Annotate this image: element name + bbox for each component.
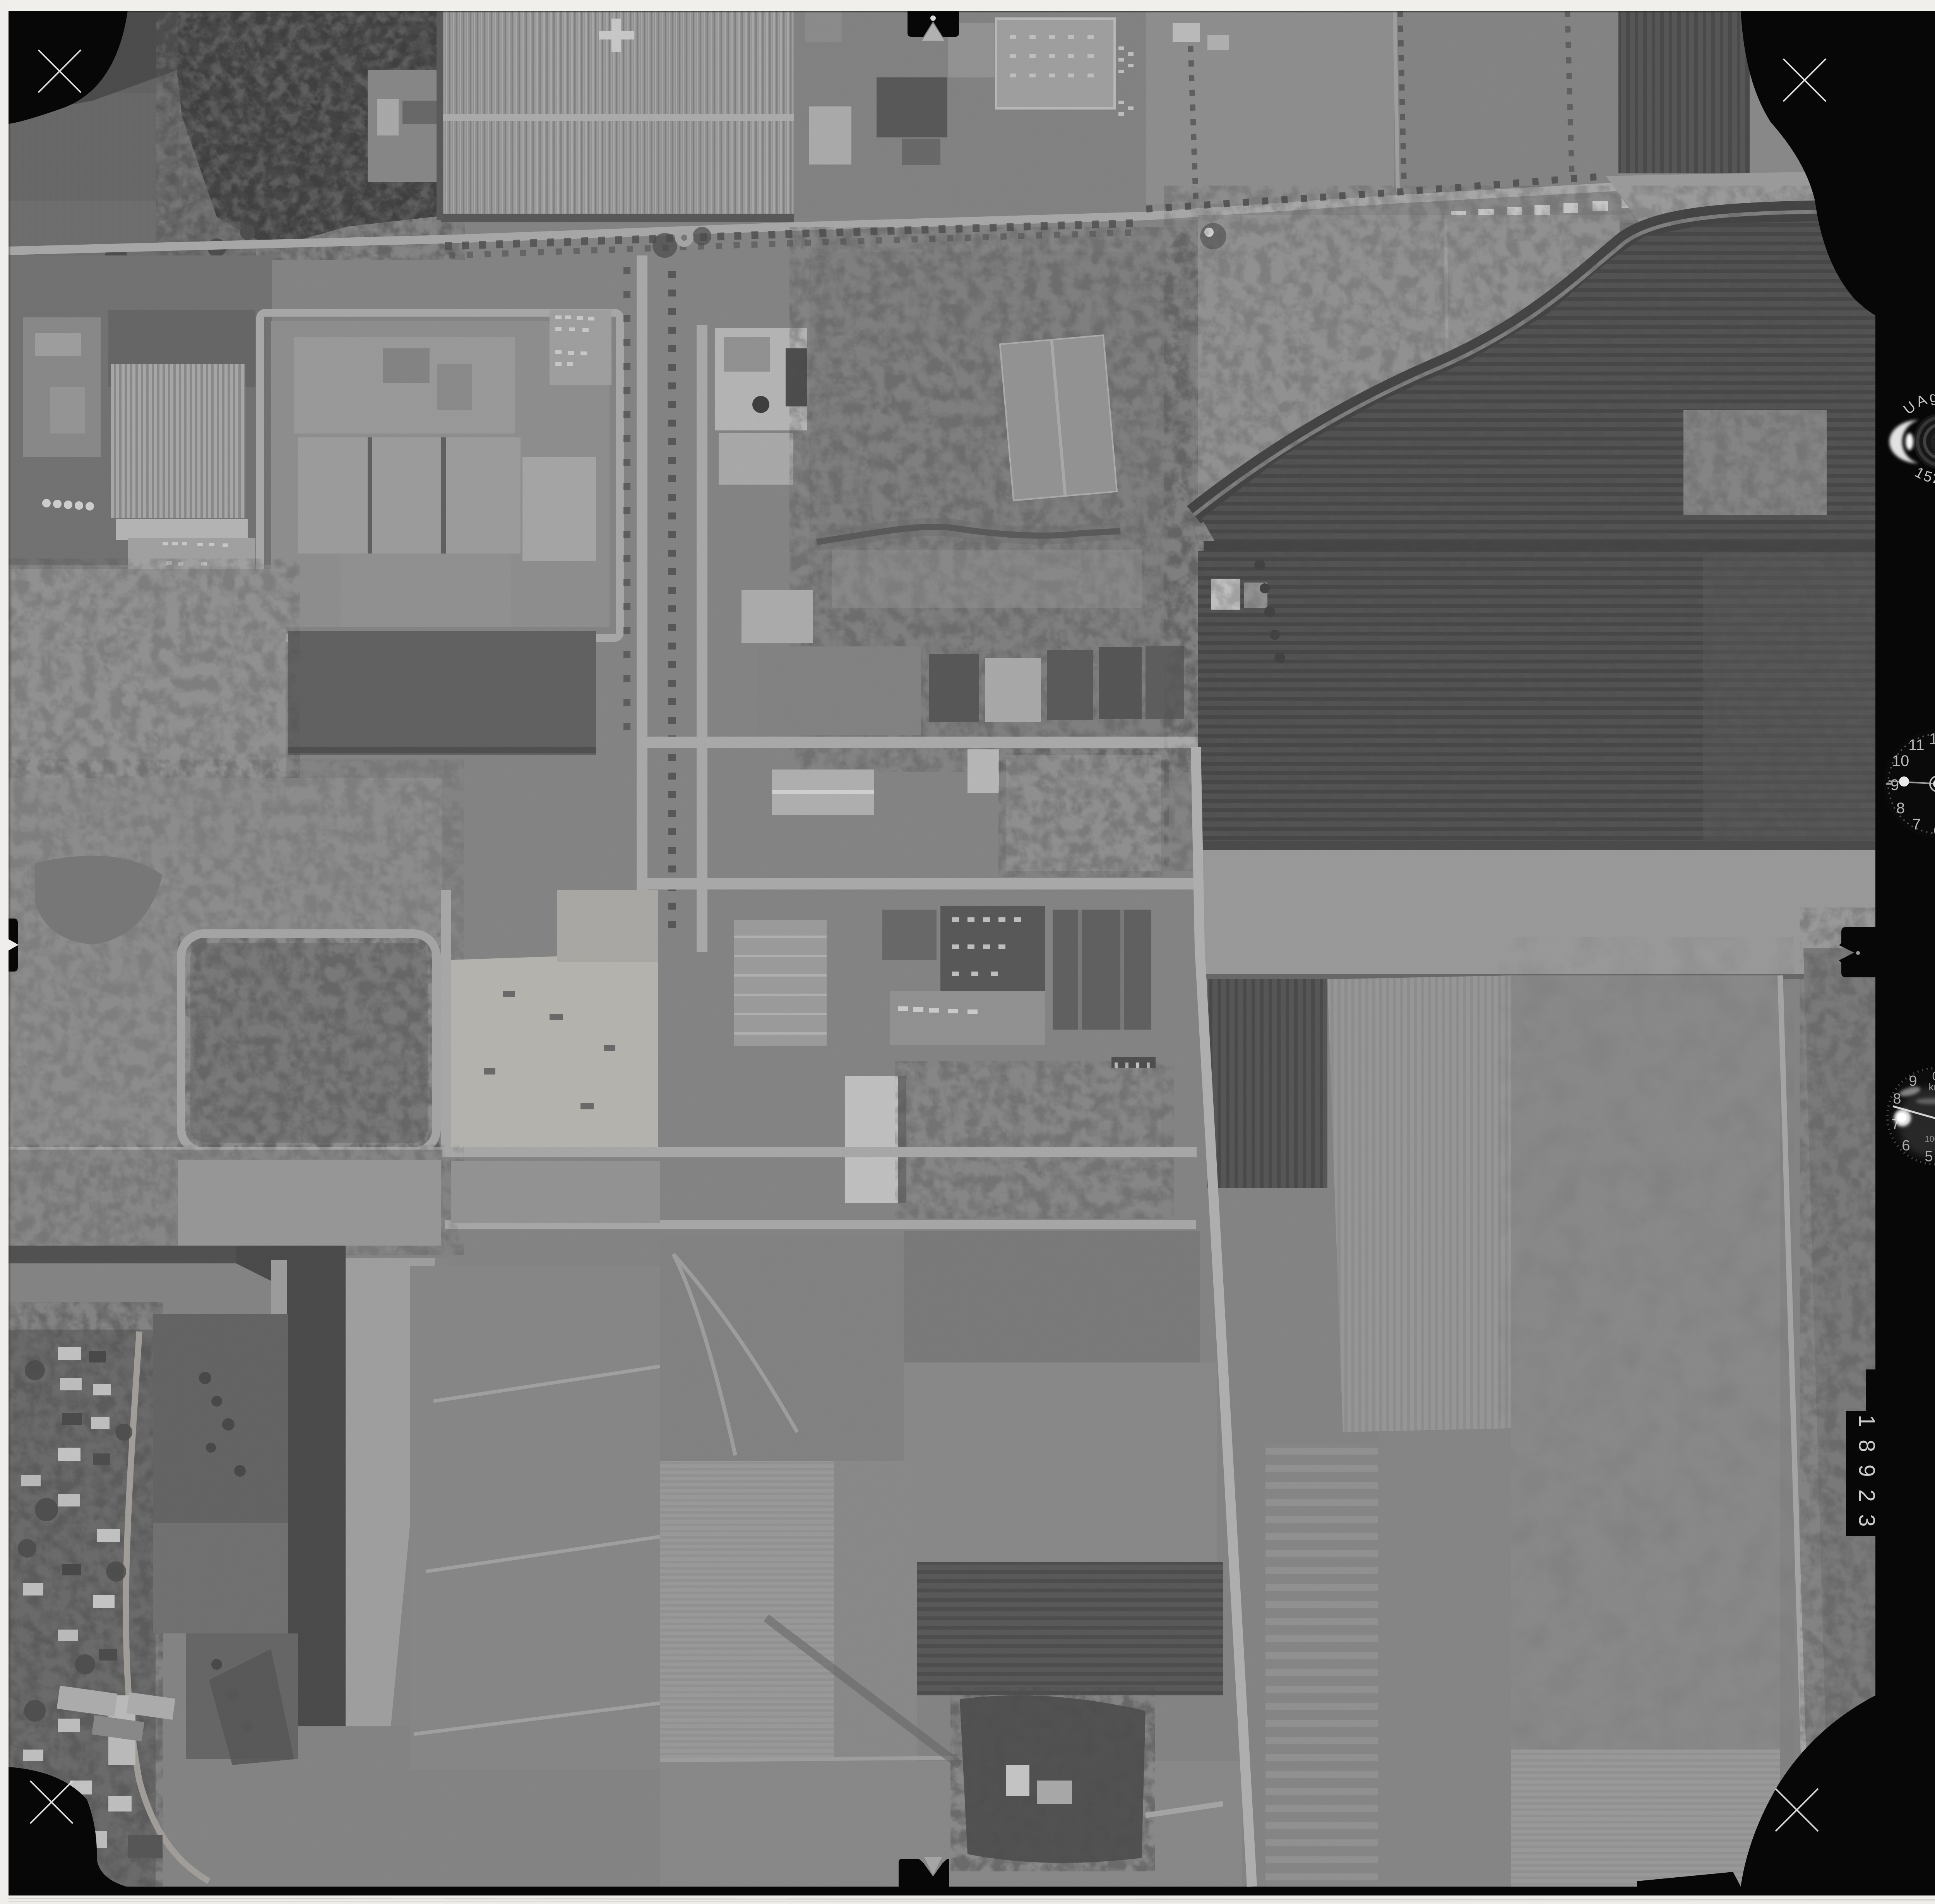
svg-text:18923: 18923 xyxy=(1854,1415,1879,1539)
svg-text:0: 0 xyxy=(1932,1070,1935,1083)
svg-text:8: 8 xyxy=(1896,800,1905,817)
svg-text:5: 5 xyxy=(1925,1148,1933,1165)
svg-text:km: km xyxy=(1929,1081,1935,1093)
svg-text:12: 12 xyxy=(1929,730,1935,747)
svg-text:9: 9 xyxy=(1890,776,1899,793)
svg-text:100m: 100m xyxy=(1925,1134,1935,1144)
svg-text:11: 11 xyxy=(1908,737,1925,754)
svg-text:6: 6 xyxy=(1902,1138,1910,1154)
svg-text:9: 9 xyxy=(1909,1073,1917,1089)
svg-text:10: 10 xyxy=(1892,752,1909,769)
svg-text:7: 7 xyxy=(1912,816,1921,833)
svg-text:6: 6 xyxy=(1933,822,1935,839)
